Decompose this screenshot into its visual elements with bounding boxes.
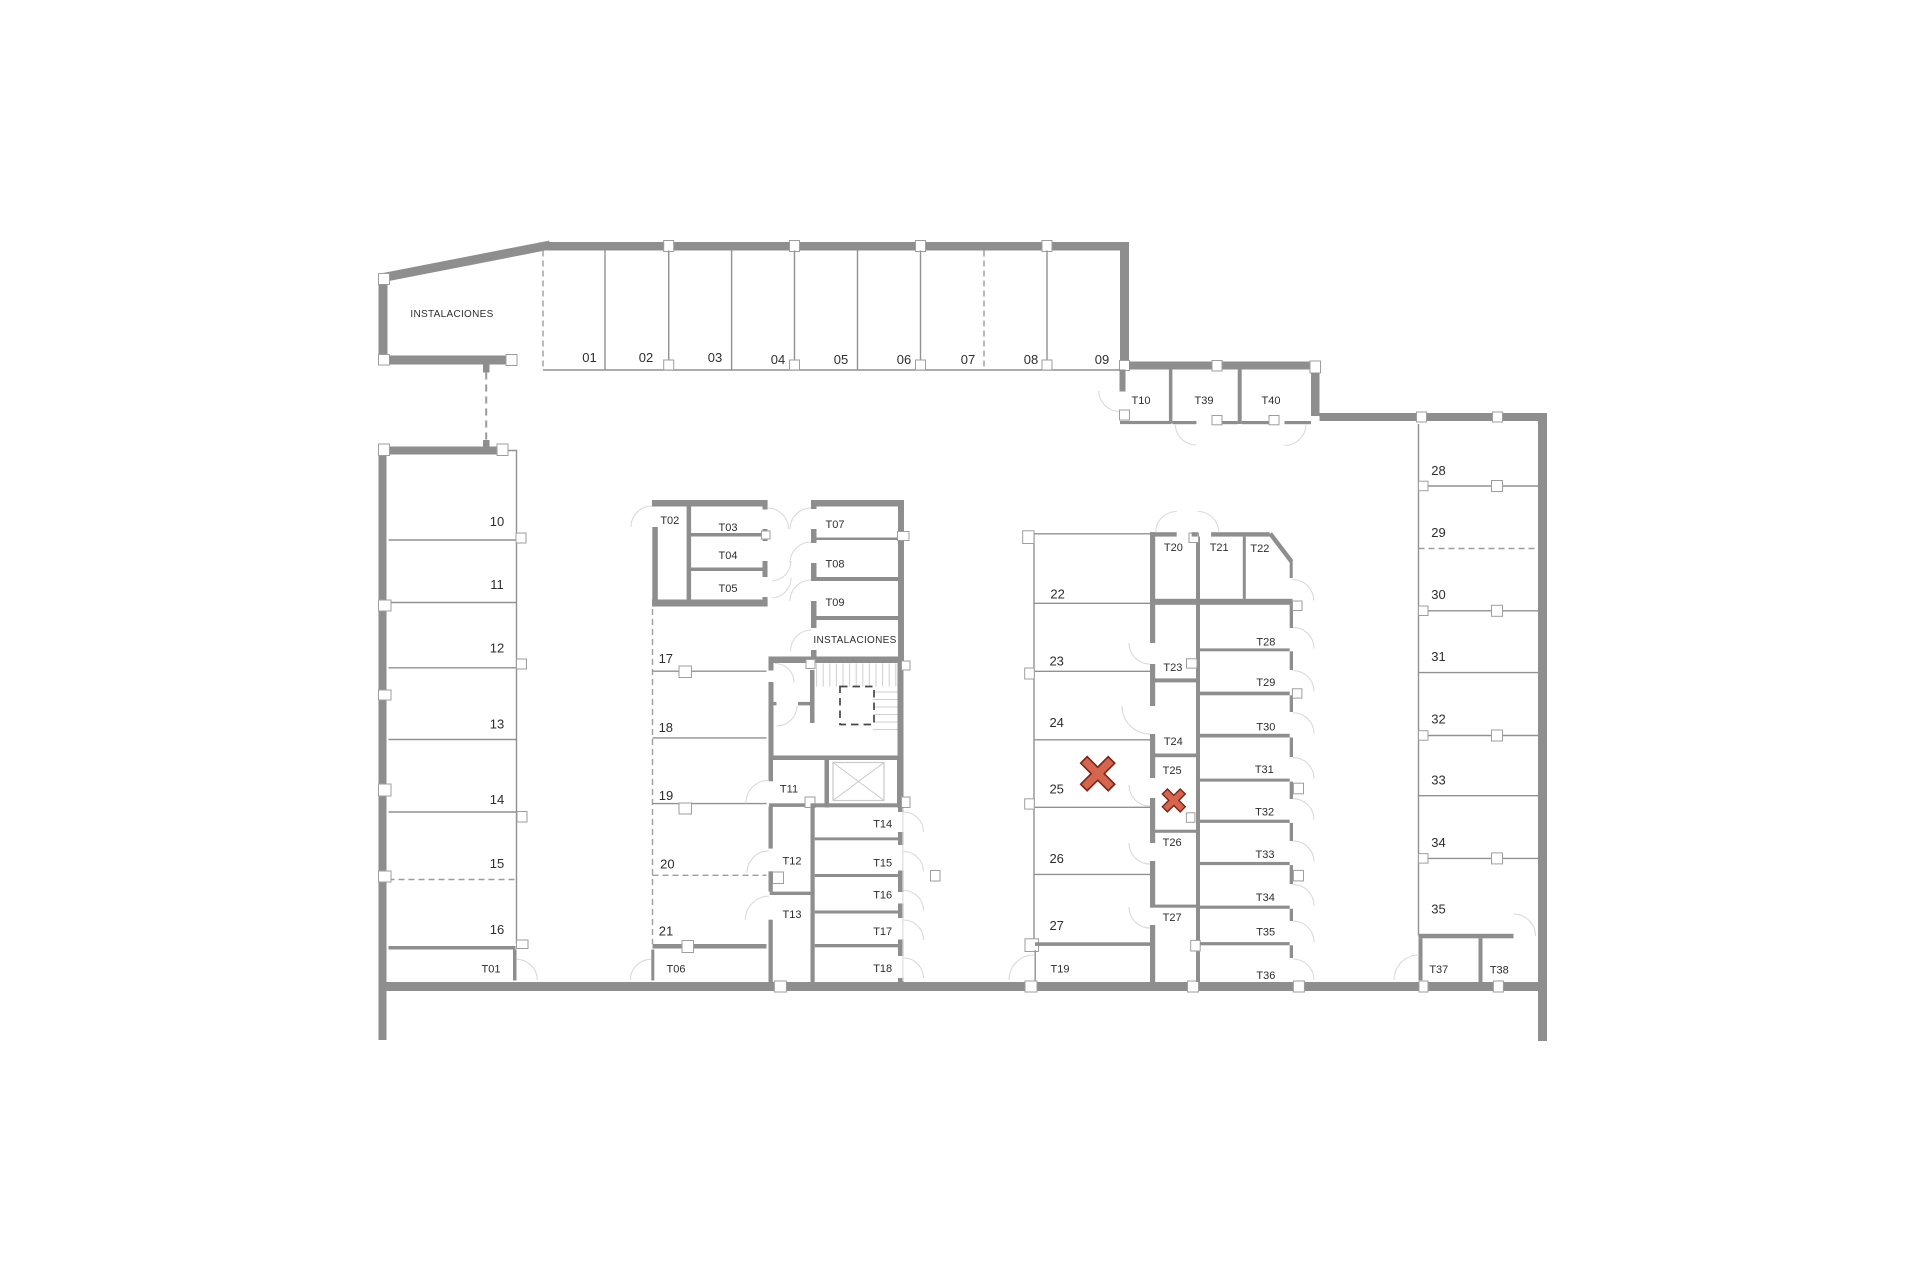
svg-text:22: 22 [1050,587,1064,602]
svg-text:T33: T33 [1256,849,1275,861]
svg-text:10: 10 [490,514,504,529]
svg-text:01: 01 [582,350,596,365]
svg-text:04: 04 [771,352,785,367]
svg-text:34: 34 [1431,835,1445,850]
svg-text:T36: T36 [1256,970,1275,982]
svg-text:T28: T28 [1256,636,1275,648]
svg-text:18: 18 [659,720,673,735]
svg-text:INSTALACIONES: INSTALACIONES [813,635,896,646]
svg-text:T32: T32 [1255,807,1274,819]
svg-text:T15: T15 [873,857,892,869]
svg-text:T26: T26 [1163,837,1182,849]
svg-text:05: 05 [834,352,848,367]
svg-text:26: 26 [1049,851,1063,866]
svg-text:T07: T07 [826,519,845,531]
svg-text:T10: T10 [1132,395,1151,407]
svg-text:T23: T23 [1163,662,1182,674]
svg-text:T22: T22 [1250,543,1269,555]
svg-text:T40: T40 [1262,395,1281,407]
svg-text:24: 24 [1049,715,1063,730]
svg-text:02: 02 [639,350,653,365]
svg-text:T14: T14 [873,819,892,831]
svg-text:T20: T20 [1164,542,1183,554]
svg-text:T02: T02 [660,515,679,527]
svg-text:31: 31 [1431,649,1445,664]
svg-text:T06: T06 [667,964,686,976]
svg-text:T19: T19 [1051,964,1070,976]
svg-text:11: 11 [490,577,504,592]
svg-text:T08: T08 [826,559,845,571]
svg-text:T30: T30 [1256,721,1275,733]
svg-text:21: 21 [659,924,673,939]
svg-text:13: 13 [490,717,504,732]
svg-text:T34: T34 [1256,892,1275,904]
svg-text:09: 09 [1095,352,1109,367]
svg-text:T17: T17 [873,926,892,938]
svg-text:30: 30 [1431,587,1445,602]
svg-text:03: 03 [708,350,722,365]
svg-text:16: 16 [490,922,504,937]
svg-text:T29: T29 [1256,677,1275,689]
svg-text:23: 23 [1049,653,1063,668]
svg-text:T05: T05 [719,583,738,595]
svg-text:T16: T16 [873,889,892,901]
svg-text:15: 15 [490,856,504,871]
svg-text:T03: T03 [719,522,738,534]
svg-text:06: 06 [897,352,911,367]
svg-text:25: 25 [1049,782,1063,797]
svg-text:17: 17 [659,651,673,666]
svg-text:T35: T35 [1256,927,1275,939]
svg-text:20: 20 [660,857,674,872]
svg-text:32: 32 [1431,712,1445,727]
svg-text:T21: T21 [1210,542,1229,554]
svg-text:33: 33 [1431,773,1445,788]
svg-text:27: 27 [1049,918,1063,933]
svg-text:T31: T31 [1255,764,1274,776]
svg-text:T09: T09 [826,597,845,609]
svg-text:14: 14 [490,792,504,807]
svg-text:29: 29 [1431,525,1445,540]
svg-text:T37: T37 [1429,964,1448,976]
svg-text:12: 12 [490,641,504,656]
svg-text:T01: T01 [482,963,501,975]
svg-text:28: 28 [1431,463,1445,478]
svg-text:35: 35 [1431,901,1445,916]
svg-text:INSTALACIONES: INSTALACIONES [410,309,493,320]
svg-text:T24: T24 [1164,736,1183,748]
svg-text:19: 19 [659,788,673,803]
svg-text:T04: T04 [719,550,738,562]
svg-text:T18: T18 [873,963,892,975]
svg-text:T11: T11 [780,784,798,796]
svg-text:T27: T27 [1163,912,1182,924]
svg-text:T12: T12 [783,855,802,867]
svg-text:T38: T38 [1490,964,1509,976]
svg-text:08: 08 [1024,352,1038,367]
svg-text:T13: T13 [783,909,802,921]
svg-text:07: 07 [961,352,975,367]
svg-text:T39: T39 [1195,395,1214,407]
svg-text:T25: T25 [1163,765,1182,777]
